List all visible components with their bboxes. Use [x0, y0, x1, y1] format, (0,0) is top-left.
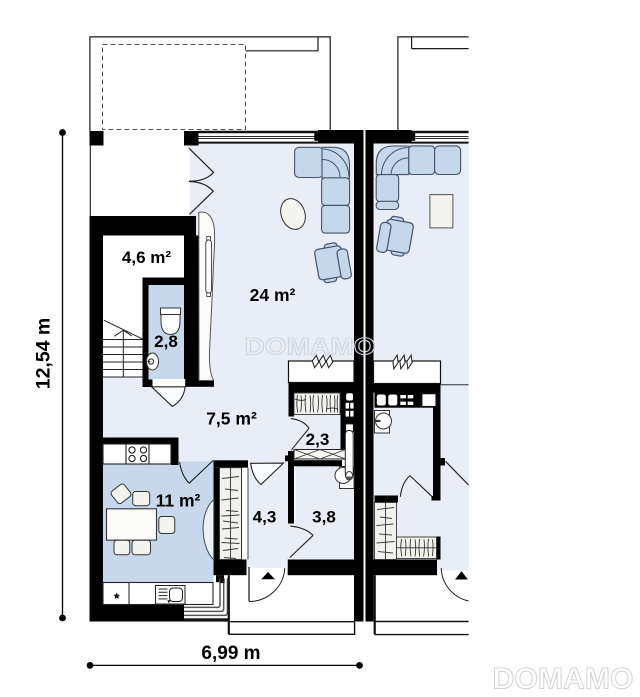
svg-text:4,6 m²: 4,6 m²	[122, 248, 171, 267]
svg-text:11 m²: 11 m²	[156, 491, 201, 511]
svg-text:24 m²: 24 m²	[250, 285, 296, 305]
svg-text:2,8: 2,8	[154, 332, 178, 351]
svg-text:6,99 m: 6,99 m	[201, 643, 260, 664]
svg-text:12,54 m: 12,54 m	[33, 318, 55, 390]
svg-text:2,3: 2,3	[306, 430, 330, 449]
svg-text:DOMAMO: DOMAMO	[245, 334, 376, 361]
svg-text:DOMAMO: DOMAMO	[493, 663, 634, 696]
svg-text:7,5 m²: 7,5 m²	[206, 409, 257, 429]
svg-text:4,3: 4,3	[253, 508, 277, 527]
svg-text:3,8: 3,8	[312, 508, 336, 527]
